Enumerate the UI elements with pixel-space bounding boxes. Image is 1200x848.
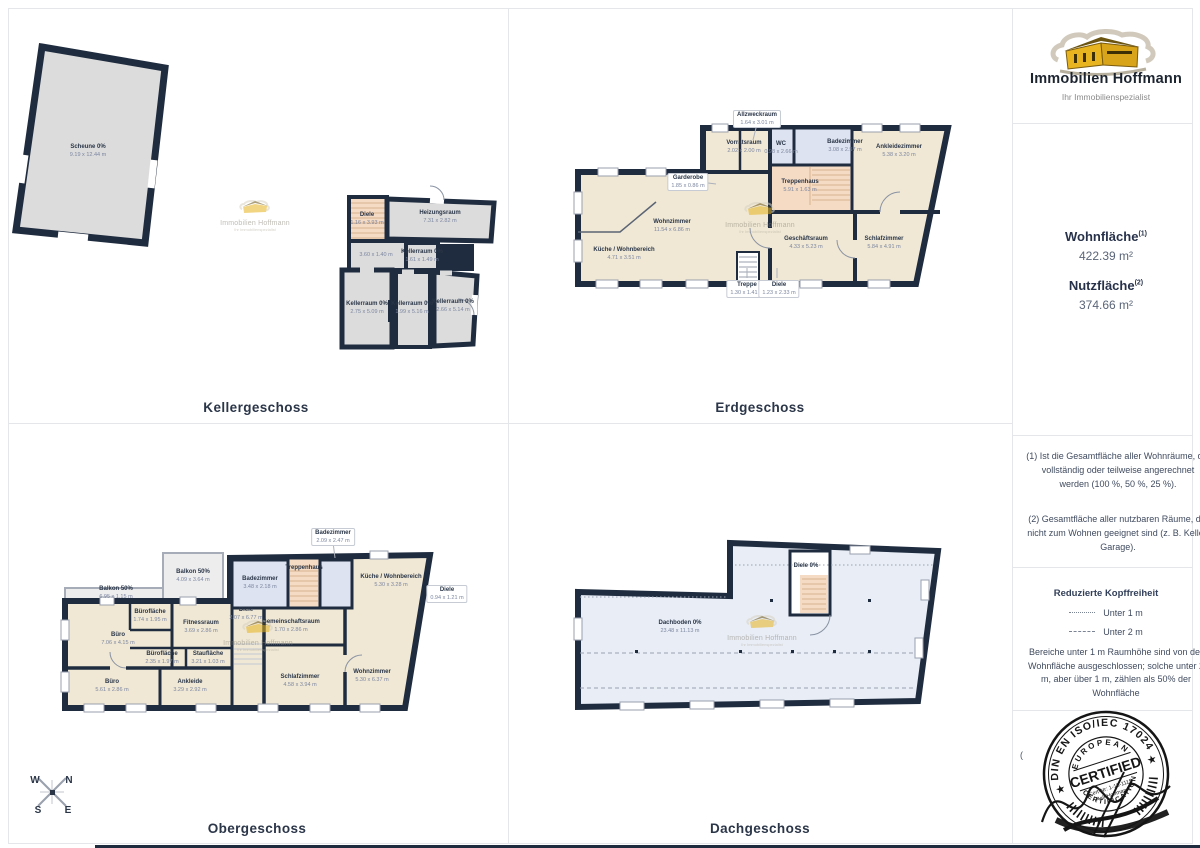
room-label: Kellerraum 0%1.99 x 5.16 m <box>391 301 433 315</box>
note-2: (2) Gesamtfläche aller nutzbaren Räume, … <box>1014 513 1200 555</box>
title-kellergeschoss: Kellergeschoss <box>203 400 308 415</box>
room-dims: 2.66 x 5.14 m <box>432 307 474 314</box>
room-label: Küche / Wohnbereich5.30 x 3.28 m <box>360 574 421 588</box>
room-label: Fitnessraum3.69 x 2.86 m <box>183 620 219 634</box>
room-label: Diele 0% <box>794 563 819 571</box>
room-name: Vorratsraum <box>726 140 761 148</box>
room-label: Diele0.94 x 1.21 m <box>426 585 467 603</box>
room-name: Kellerraum 0% <box>432 299 474 307</box>
company-tagline-text: Ihr Immobilienspezialist <box>1062 92 1150 102</box>
room-name: Balkon 50% <box>176 569 210 577</box>
room-label: Ankleide3.29 x 2.92 m <box>173 679 206 693</box>
room-label: Gemeinschaftsraum1.70 x 2.86 m <box>262 619 320 633</box>
room-dims: 23.48 x 11.13 m <box>658 628 701 635</box>
room-label: Büro5.61 x 2.86 m <box>95 679 128 693</box>
watermark-tagline: Ihr Immobilienspezialist <box>727 642 797 647</box>
room-dims: 7.31 x 2.82 m <box>419 218 460 225</box>
room-dims: 0.98 x 2.66 m <box>764 149 797 156</box>
watermark-name: Immobilien Hoffmann <box>223 640 293 647</box>
watermark-logo: Immobilien Hoffmann Ihr Immobilienspezia… <box>727 615 797 647</box>
plans-drawing: W N S E <box>0 0 1200 848</box>
room-label: Ankleidezimmer5.38 x 3.20 m <box>876 144 922 158</box>
compass-e: E <box>65 805 72 816</box>
room-dims: 2.07 x 6.77 m <box>229 615 262 622</box>
watermark-tagline: Ihr Immobilienspezialist <box>223 647 293 652</box>
room-dims: 3.60 x 1.40 m <box>359 252 392 259</box>
company-tagline: Ihr Immobilienspezialist <box>1014 87 1198 105</box>
nutzflaeche-sup: (2) <box>1135 280 1144 287</box>
watermark-house-icon <box>237 200 273 215</box>
room-label: Treppenhaus <box>285 565 322 573</box>
legend-under-1m-text: Unter 1 m <box>1103 608 1143 618</box>
watermark-house-icon <box>744 615 780 630</box>
room-label: Badezimmer2.09 x 2.47 m <box>311 528 355 546</box>
truncated-text: ( <box>1020 750 1023 760</box>
stamp-star-left: ★ <box>1054 783 1067 798</box>
room-name: Wohnzimmer <box>653 219 691 227</box>
room-dims: 1.61 x 1.49 m <box>401 257 443 264</box>
wohnflaeche-label: Wohnfläche(1) <box>1014 228 1198 246</box>
room-name: Badezimmer <box>242 576 278 584</box>
room-dims: 2.02 x 2.00 m <box>726 148 761 155</box>
room-label: Badezimmer3.08 x 2.57 m <box>827 139 863 153</box>
room-name: WC <box>764 141 797 149</box>
wohnflaeche-value: 422.39 m² <box>1014 249 1198 263</box>
room-dims: 2.75 x 5.09 m <box>346 309 388 316</box>
room-name: Schlafzimmer <box>864 236 903 244</box>
room-label: Schlafzimmer5.84 x 4.91 m <box>864 236 903 250</box>
title-erdgeschoss: Erdgeschoss <box>715 400 804 415</box>
room-label: WC0.98 x 2.66 m <box>764 141 797 155</box>
room-label: Wohnzimmer5.30 x 6.37 m <box>353 669 391 683</box>
room-dims: 3.48 x 2.18 m <box>242 584 278 591</box>
room-label: Balkon 50%4.09 x 3.64 m <box>176 569 210 583</box>
watermark-name: Immobilien Hoffmann <box>727 635 797 642</box>
legend-under-2m-text: Unter 2 m <box>1103 627 1143 637</box>
nutzflaeche-value: 374.66 m² <box>1014 298 1198 312</box>
room-label: Schlafzimmer4.58 x 3.94 m <box>280 674 319 688</box>
room-name: Dachboden 0% <box>658 620 701 628</box>
room-name: Wohnzimmer <box>353 669 391 677</box>
room-dims: 4.33 x 5.23 m <box>784 244 828 251</box>
room-label: Bürofläche2.35 x 1.97 m <box>145 651 178 665</box>
keller-plan <box>342 186 494 347</box>
room-label: Diele2.07 x 6.77 m <box>229 607 262 621</box>
room-dims: 1.99 x 5.16 m <box>391 309 433 316</box>
room-name: Diele <box>229 607 262 615</box>
legend-title: Reduzierte Kopffreiheit <box>1014 588 1198 599</box>
wohnflaeche-sup: (1) <box>1138 231 1147 238</box>
room-dims: 7.06 x 4.15 m <box>101 640 134 647</box>
room-label: 3.60 x 1.40 m <box>359 252 392 259</box>
room-name: Allzweckraum <box>737 112 777 120</box>
room-dims: 3.69 x 2.86 m <box>183 628 219 635</box>
room-label: Vorratsraum2.02 x 2.00 m <box>726 140 761 154</box>
room-dims: 2.35 x 1.97 m <box>145 659 178 666</box>
room-dims: 5.61 x 2.86 m <box>95 687 128 694</box>
room-dims: 4.71 x 3.51 m <box>593 255 654 262</box>
dotted-line-sample <box>1069 612 1095 613</box>
room-name: Treppenhaus <box>781 179 818 187</box>
room-dims: 2.09 x 2.47 m <box>315 538 351 545</box>
floorplan-page: W N S E Scheune 0%9.19 x 12.44 m Diele1.… <box>0 0 1200 848</box>
room-label: Scheune 0%9.19 x 12.44 m <box>70 144 106 158</box>
room-label: Staufläche3.21 x 1.03 m <box>191 651 224 665</box>
room-label: Heizungsraum7.31 x 2.82 m <box>419 210 460 224</box>
watermark-tagline: Ihr Immobilienspezialist <box>220 227 290 232</box>
room-dims: 0.94 x 1.21 m <box>430 595 463 602</box>
watermark-logo: Immobilien Hoffmann Ihr Immobilienspezia… <box>725 202 795 234</box>
room-name: Garderobe <box>671 175 704 183</box>
room-dims: 11.54 x 6.86 m <box>653 227 691 234</box>
room-dims: 4.58 x 3.94 m <box>280 682 319 689</box>
room-label: Bürofläche1.74 x 1.95 m <box>133 609 166 623</box>
watermark-name: Immobilien Hoffmann <box>220 220 290 227</box>
room-label: Treppenhaus5.91 x 1.63 m <box>781 179 818 193</box>
room-name: Diele 0% <box>794 563 819 571</box>
room-name: Kellerraum 0% <box>401 249 443 257</box>
room-dims: 1.16 x 3.93 m <box>350 220 383 227</box>
compass-s: S <box>35 805 42 816</box>
room-label: Badezimmer3.48 x 2.18 m <box>242 576 278 590</box>
room-name: Ankleidezimmer <box>876 144 922 152</box>
legend-under-1m: Unter 1 m <box>1014 608 1198 618</box>
room-name: Schlafzimmer <box>280 674 319 682</box>
room-dims: 1.85 x 0.86 m <box>671 183 704 190</box>
room-name: Badezimmer <box>827 139 863 147</box>
room-name: Scheune 0% <box>70 144 106 152</box>
room-dims: 5.30 x 3.28 m <box>360 582 421 589</box>
nutzflaeche-label-text: Nutzfläche <box>1069 278 1135 293</box>
title-obergeschoss: Obergeschoss <box>208 821 307 836</box>
room-dims: 3.29 x 2.92 m <box>173 687 206 694</box>
room-name: Fitnessraum <box>183 620 219 628</box>
room-name: Diele <box>762 282 795 290</box>
room-name: Gemeinschaftsraum <box>262 619 320 627</box>
room-name: Kellerraum 0% <box>391 301 433 309</box>
wohnflaeche-label-text: Wohnfläche <box>1065 229 1138 244</box>
room-label: Diele1.23 x 2.33 m <box>758 280 799 298</box>
room-dims: 3.21 x 1.03 m <box>191 659 224 666</box>
watermark-logo: Immobilien Hoffmann Ihr Immobilienspezia… <box>220 200 290 232</box>
room-name: Ankleide <box>173 679 206 687</box>
room-name: Bürofläche <box>145 651 178 659</box>
room-dims: 1.64 x 3.01 m <box>737 120 777 127</box>
room-dims: 1.70 x 2.86 m <box>262 627 320 634</box>
room-dims: 5.91 x 1.63 m <box>781 187 818 194</box>
room-name: Heizungsraum <box>419 210 460 218</box>
room-label: Büro7.06 x 4.15 m <box>101 632 134 646</box>
room-label: Kellerraum 0%2.75 x 5.09 m <box>346 301 388 315</box>
stamp-star-right: ★ <box>1145 753 1158 768</box>
room-name: Diele <box>350 212 383 220</box>
room-label: Wohnzimmer11.54 x 6.86 m <box>653 219 691 233</box>
room-name: Badezimmer <box>315 530 351 538</box>
room-dims: 6.95 x 1.15 m <box>99 594 133 601</box>
room-label: Küche / Wohnbereich4.71 x 3.51 m <box>593 247 654 261</box>
room-dims: 4.09 x 3.64 m <box>176 577 210 584</box>
room-label: Balkon 50%6.95 x 1.15 m <box>99 586 133 600</box>
room-dims: 3.08 x 2.57 m <box>827 147 863 154</box>
room-name: Büro <box>101 632 134 640</box>
room-name: Küche / Wohnbereich <box>360 574 421 582</box>
room-name: Kellerraum 0% <box>346 301 388 309</box>
room-name: Geschäftsraum <box>784 236 828 244</box>
note-1: (1) Ist die Gesamtfläche aller Wohnräume… <box>1014 450 1200 492</box>
room-name: Bürofläche <box>133 609 166 617</box>
room-name: Büro <box>95 679 128 687</box>
title-dachgeschoss: Dachgeschoss <box>710 821 810 836</box>
legend-under-2m: Unter 2 m <box>1014 627 1198 637</box>
room-label: Dachboden 0%23.48 x 11.13 m <box>658 620 701 634</box>
room-name: Diele <box>430 587 463 595</box>
nutzflaeche-label: Nutzfläche(2) <box>1014 277 1198 295</box>
room-dims: 9.19 x 12.44 m <box>70 152 106 159</box>
room-name: Staufläche <box>191 651 224 659</box>
compass-w: W <box>30 775 40 786</box>
compass-n: N <box>65 775 72 786</box>
room-dims: 5.84 x 4.91 m <box>864 244 903 251</box>
room-dims: 5.38 x 3.20 m <box>876 152 922 159</box>
room-name: Treppenhaus <box>285 565 322 573</box>
compass: W N S E <box>30 775 72 816</box>
company-name: Immobilien Hoffmann <box>1014 70 1198 88</box>
room-label: Diele1.16 x 3.93 m <box>350 212 383 226</box>
room-dims: 1.74 x 1.95 m <box>133 617 166 624</box>
certification-stamp: DIN EN ISO/IEC 17024 ★ ★ EUROPEAN CERTIF… <box>1028 702 1180 848</box>
room-label: Kellerraum 0%2.66 x 5.14 m <box>432 299 474 313</box>
watermark-name: Immobilien Hoffmann <box>725 222 795 229</box>
room-dims: 1.23 x 2.33 m <box>762 290 795 297</box>
dashed-line-sample <box>1069 631 1095 632</box>
company-name-text: Immobilien Hoffmann <box>1030 71 1182 87</box>
room-name: Küche / Wohnbereich <box>593 247 654 255</box>
watermark-house-icon <box>742 202 778 217</box>
room-label: Kellerraum 0%1.61 x 1.49 m <box>401 249 443 263</box>
legend-body: Bereiche unter 1 m Raumhöhe sind von der… <box>1014 646 1200 700</box>
watermark-tagline: Ihr Immobilienspezialist <box>725 229 795 234</box>
room-label: Allzweckraum1.64 x 3.01 m <box>733 110 781 128</box>
room-dims: 5.30 x 6.37 m <box>353 677 391 684</box>
room-label: Garderobe1.85 x 0.86 m <box>667 173 708 191</box>
room-label: Geschäftsraum4.33 x 5.23 m <box>784 236 828 250</box>
room-name: Balkon 50% <box>99 586 133 594</box>
